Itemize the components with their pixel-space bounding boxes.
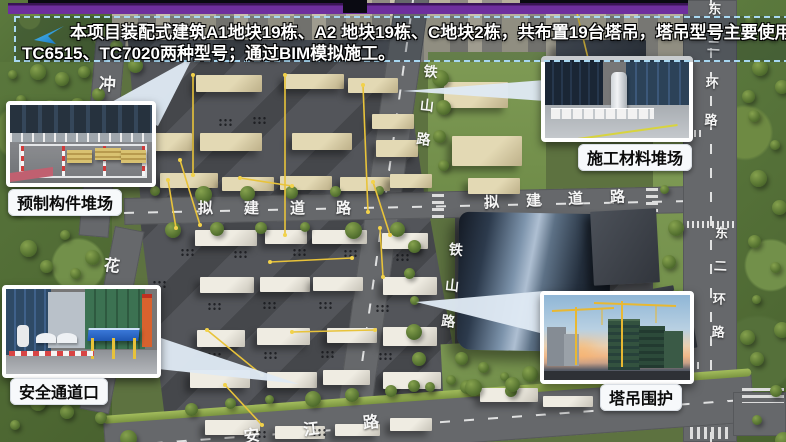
label-precast-yard: 预制构件堆场 xyxy=(8,189,122,216)
small-silo xyxy=(17,325,29,347)
inset-material-yard xyxy=(541,56,693,142)
structure-band xyxy=(10,133,152,142)
tent xyxy=(36,333,56,343)
precast-stack xyxy=(95,148,121,160)
glass-building xyxy=(10,105,152,133)
top-bar-notch xyxy=(343,0,367,13)
precast-yard-photo xyxy=(10,105,152,183)
inset-precast-yard xyxy=(6,101,156,187)
canopy-leg xyxy=(112,338,115,358)
striped-barrier xyxy=(9,351,94,356)
wedge-safety-passage xyxy=(158,337,299,384)
blue-glass-building xyxy=(6,289,51,355)
silo xyxy=(611,72,627,109)
wedge-material-yard xyxy=(403,80,545,101)
material-fence xyxy=(551,108,655,119)
tower-crane-photo xyxy=(544,295,690,380)
slide-construction-site-plan: 铁山路 铁山路 拟建道路 拟建道路 东二环路 东二环路 安江路 冲 花 预制构件… xyxy=(0,0,786,442)
label-tower-crane-enclosure: 塔吊围护 xyxy=(600,384,682,411)
summary-banner: 本项目装配式建筑A1地块19栋、A2 地块19栋、C地块2栋，共布置19台塔吊，… xyxy=(14,16,786,62)
hoist xyxy=(142,294,153,347)
inset-safety-passage xyxy=(2,285,161,378)
precast-stack xyxy=(67,150,93,162)
safety-passage-photo xyxy=(6,289,157,374)
banner-line2: TC6515、TC7020两种型号；通过BIM模拟施工。 xyxy=(22,39,395,64)
tent xyxy=(57,333,77,343)
canopy-leg xyxy=(133,338,136,358)
inset-tower-crane-enclosure xyxy=(540,291,694,384)
tower-crane-icon xyxy=(544,295,690,380)
precast-stack xyxy=(121,150,147,162)
dark-tower xyxy=(545,60,603,111)
material-yard-photo xyxy=(545,60,689,138)
blue-tower xyxy=(626,60,689,105)
label-safety-passage: 安全通道口 xyxy=(10,378,108,405)
wedge-tower-crane xyxy=(416,291,544,334)
label-material-yard: 施工材料堆场 xyxy=(578,144,692,171)
